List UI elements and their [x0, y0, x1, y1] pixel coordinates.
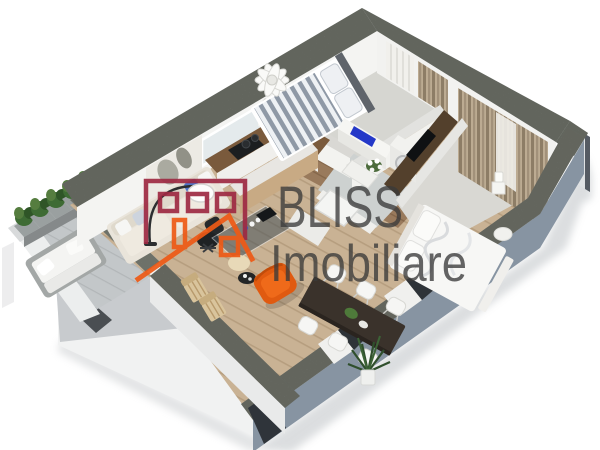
- cream-pouf: [228, 255, 250, 271]
- pouf: [494, 228, 512, 241]
- apartment-3d-render: BLISS Imobiliare: [0, 0, 600, 450]
- floorplan-screenshot: BLISS Imobiliare: [0, 0, 600, 450]
- subtitle-text: Imobiliare: [270, 235, 467, 293]
- side-table: [238, 272, 256, 284]
- brand-text: BLISS: [277, 175, 403, 240]
